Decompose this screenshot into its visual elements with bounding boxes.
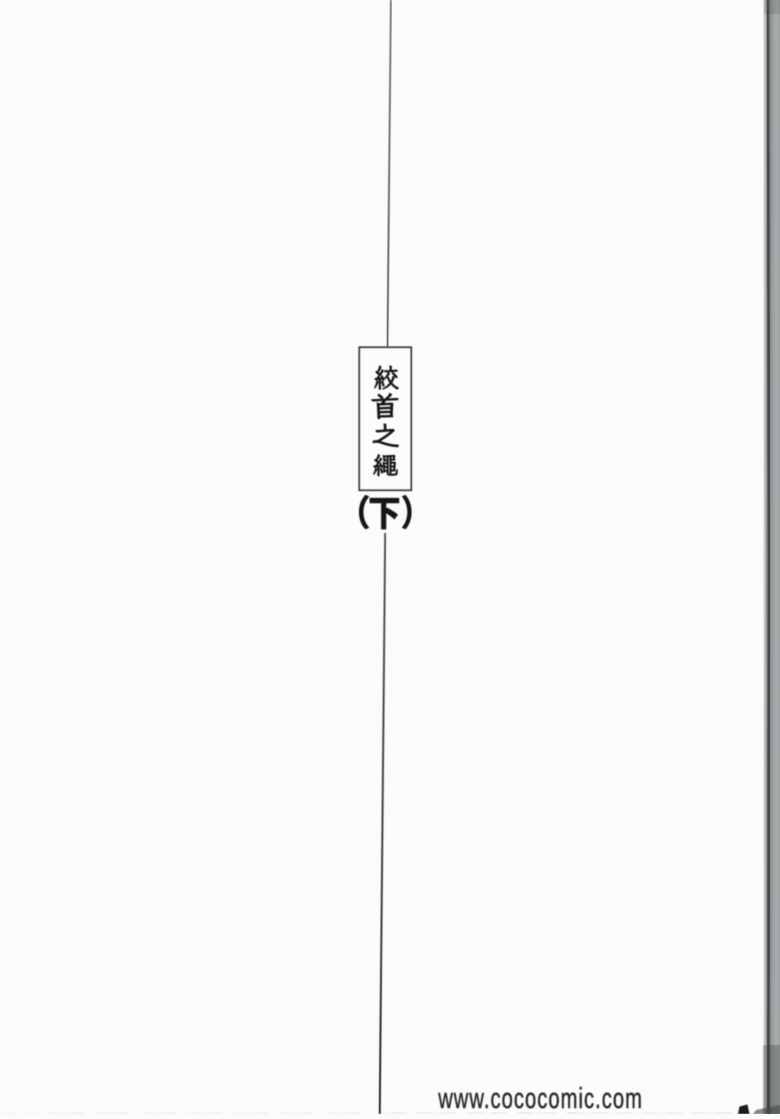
svg-text:www.cococomic.com: www.cococomic.com xyxy=(437,1083,643,1114)
